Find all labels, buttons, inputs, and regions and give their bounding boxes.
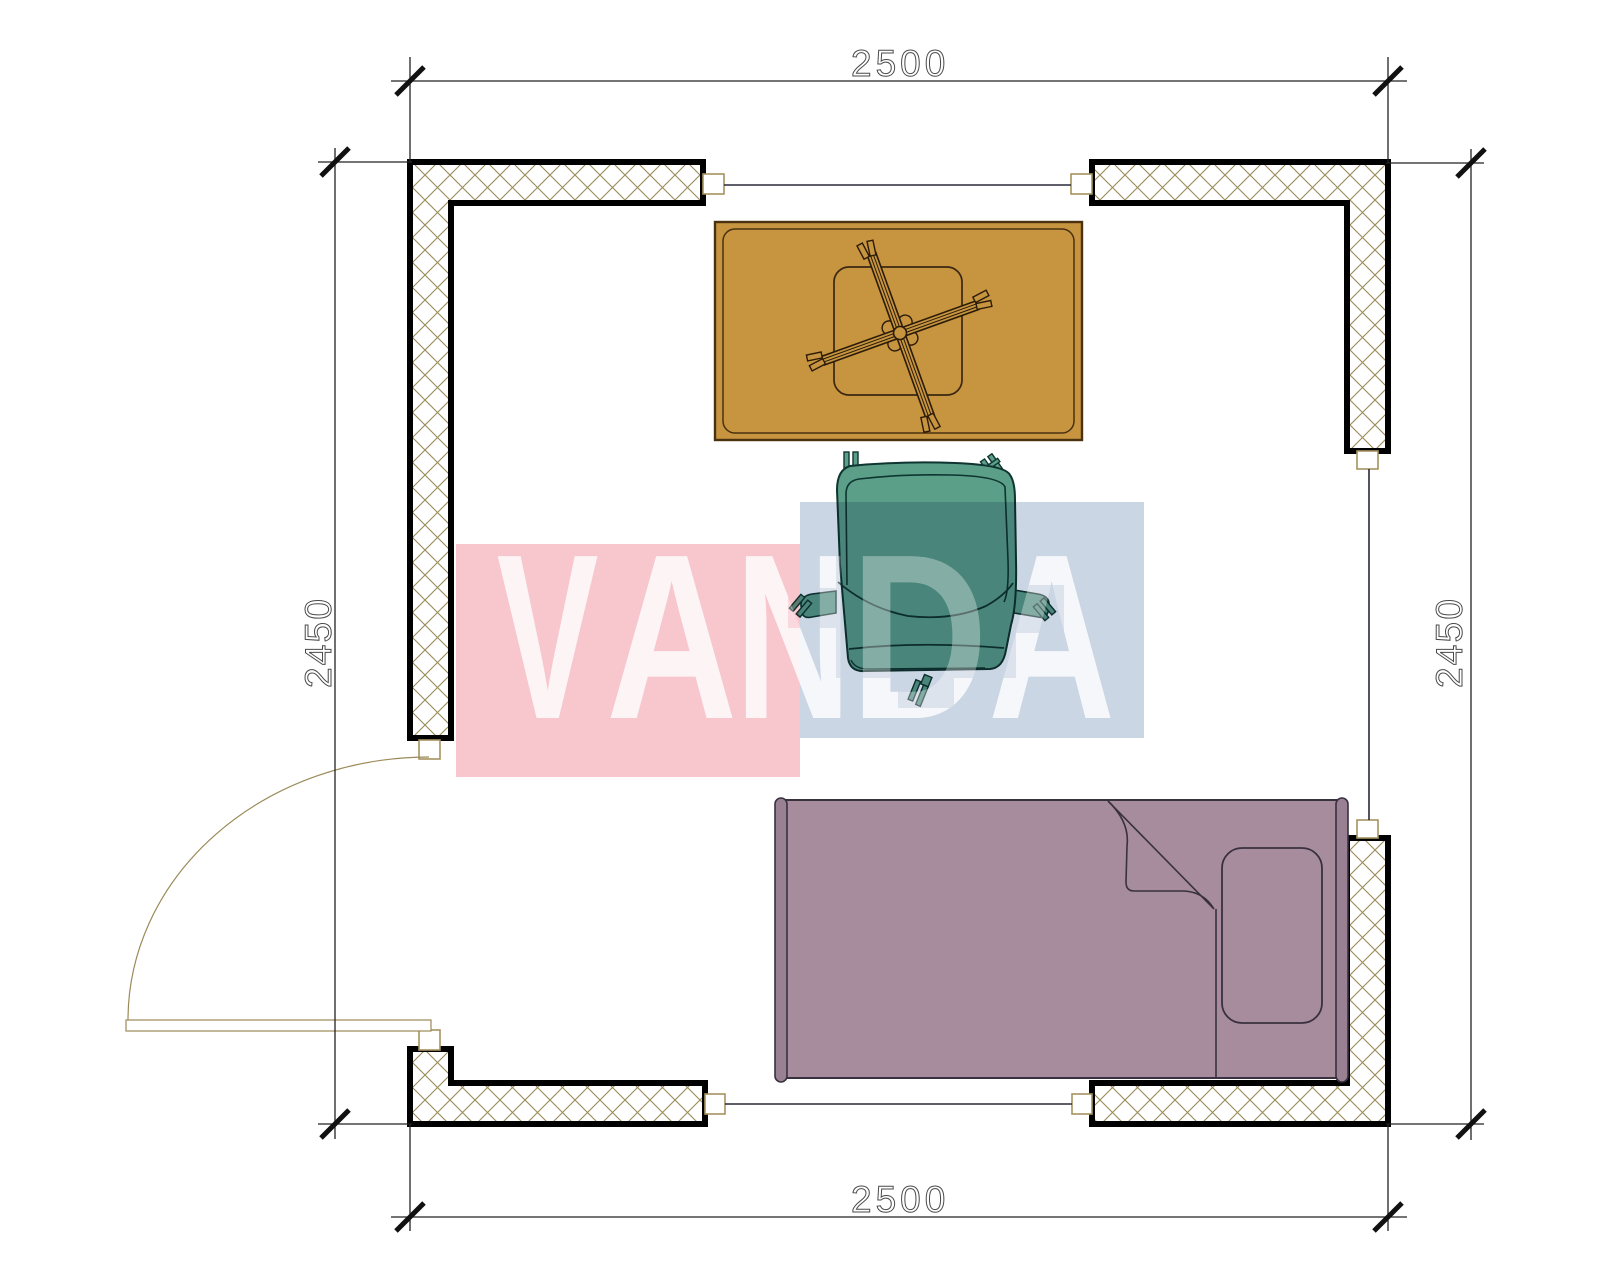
svg-text:A: A [988,506,1115,769]
svg-text:2450: 2450 [1429,597,1470,688]
svg-text:V: V [497,506,599,769]
svg-text:2500: 2500 [851,1179,949,1220]
svg-text:N: N [735,505,851,768]
svg-text:D: D [850,506,988,768]
svg-text:A: A [606,505,737,768]
svg-text:2450: 2450 [298,597,339,688]
svg-text:2500: 2500 [851,43,949,84]
